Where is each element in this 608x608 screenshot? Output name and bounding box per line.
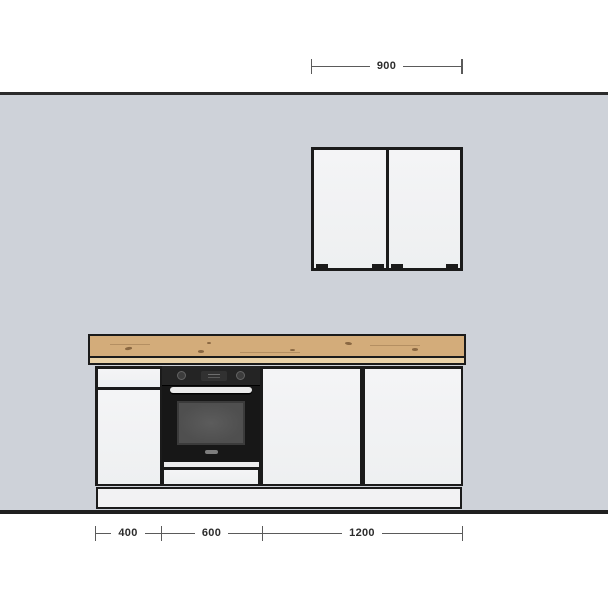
base-door-right-2[interactable]: [365, 369, 461, 484]
plinth[interactable]: [96, 487, 462, 509]
dimension-top-900: 900: [311, 59, 462, 74]
dimension-line: [161, 533, 195, 534]
countertop-wood-surface: [90, 336, 464, 356]
kitchen-elevation-canvas: 900: [0, 0, 608, 608]
oven-display: [201, 371, 227, 381]
oven-brand-logo: [205, 450, 218, 454]
oven-handle-bar[interactable]: [170, 387, 252, 393]
base-door-left[interactable]: [98, 390, 160, 484]
oven-knob-icon[interactable]: [236, 371, 245, 380]
wall-cabinet[interactable]: [311, 147, 463, 271]
dimension-line: [311, 66, 370, 67]
base-drawer-front-left[interactable]: [98, 369, 160, 388]
dimension-line: [403, 66, 462, 67]
wood-knot: [198, 350, 204, 353]
wood-knot: [290, 349, 295, 351]
wood-knot: [412, 348, 418, 351]
cabinet-handle-icon: [316, 264, 328, 268]
dimension-line: [382, 533, 462, 534]
wall-cabinet-door-right[interactable]: [389, 150, 461, 268]
wall-cabinet-door-left[interactable]: [314, 150, 386, 268]
dimension-bottom-1200: 1200: [262, 526, 462, 541]
dimension-label: 600: [195, 526, 228, 541]
wood-grain: [110, 344, 150, 345]
dimension-bottom-400: 400: [95, 526, 161, 541]
base-drawer-under-oven[interactable]: [164, 470, 258, 484]
dimension-bottom-600: 600: [161, 526, 262, 541]
oven-door-window: [177, 401, 245, 445]
wood-knot: [207, 342, 211, 344]
floor-line: [0, 510, 608, 514]
wood-knot: [125, 347, 132, 350]
wood-grain: [370, 345, 420, 346]
cabinet-handle-icon: [446, 264, 458, 268]
oven-knob-icon[interactable]: [177, 371, 186, 380]
dimension-label: 900: [370, 59, 403, 74]
dimension-label: 400: [111, 526, 144, 541]
dimension-label: 1200: [342, 526, 382, 541]
built-in-oven[interactable]: [162, 366, 260, 462]
dimension-line: [228, 533, 262, 534]
oven-control-panel: [162, 366, 260, 386]
cabinet-handle-icon: [372, 264, 384, 268]
dimension-line: [95, 533, 111, 534]
wood-knot: [345, 342, 352, 346]
dimension-line: [145, 533, 161, 534]
wood-grain: [240, 352, 300, 353]
oven-bottom-trim: [164, 462, 259, 467]
cabinet-handle-icon: [391, 264, 403, 268]
dimension-line: [262, 533, 342, 534]
base-cabinet-run[interactable]: [95, 366, 463, 486]
countertop-front-edge: [90, 358, 464, 364]
base-door-right-1[interactable]: [263, 369, 360, 484]
countertop[interactable]: [88, 334, 466, 365]
